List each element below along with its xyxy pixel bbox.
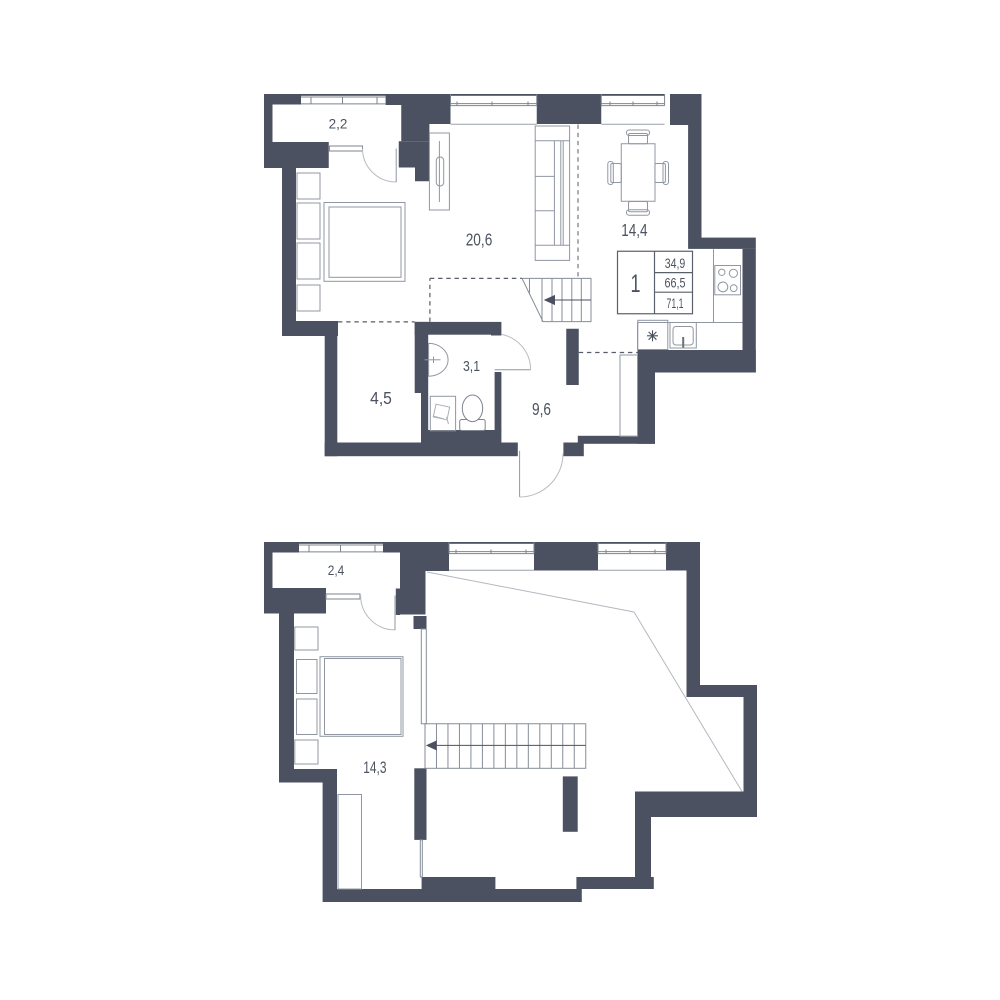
svg-text:71,1: 71,1	[667, 295, 684, 311]
svg-text:2,4: 2,4	[328, 562, 345, 578]
svg-text:20,6: 20,6	[466, 230, 493, 250]
svg-text:2,2: 2,2	[329, 116, 348, 132]
svg-text:34,9: 34,9	[665, 255, 686, 271]
svg-text:3,1: 3,1	[463, 359, 480, 375]
svg-text:1: 1	[631, 270, 641, 298]
svg-text:14,3: 14,3	[363, 759, 386, 777]
svg-text:66,5: 66,5	[665, 275, 686, 291]
svg-text:14,4: 14,4	[621, 220, 648, 240]
svg-text:4,5: 4,5	[370, 388, 392, 408]
svg-text:9,6: 9,6	[532, 399, 551, 419]
